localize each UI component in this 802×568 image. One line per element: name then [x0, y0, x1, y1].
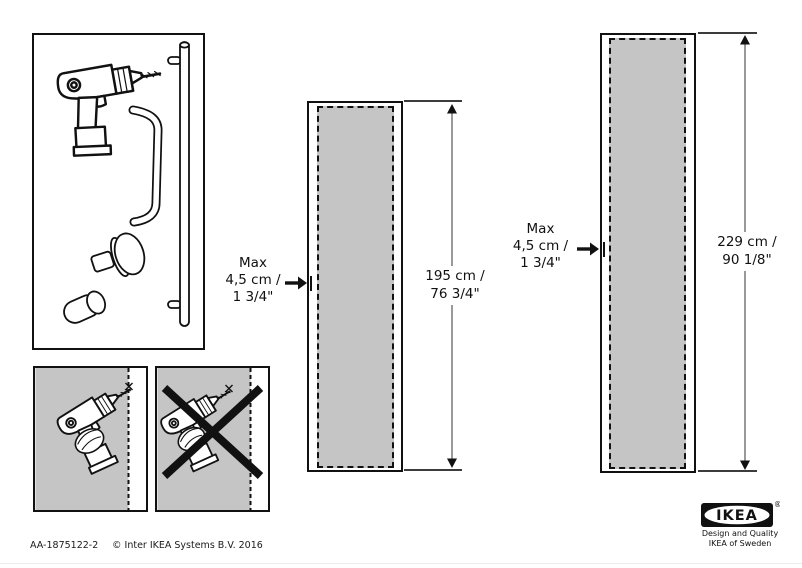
door-height-label-229: 229 cm / 90 1/8" [703, 232, 791, 271]
drill-limit-tick [310, 276, 312, 291]
max-distance-label-195: Max 4,5 cm / 1 3/4" [203, 255, 303, 306]
max-line: 1 3/4" [203, 289, 303, 306]
tagline-line: Design and Quality [694, 529, 786, 539]
max-line: 4,5 cm / [493, 238, 588, 255]
drilling-not-allowed-box [155, 366, 270, 512]
max-line: Max [203, 255, 303, 272]
door-panel-195 [307, 101, 403, 472]
ikea-logo: IKEA ® [700, 497, 780, 529]
parts-overview-box [32, 33, 205, 350]
size-line: 229 cm / [703, 234, 791, 252]
max-line: Max [493, 221, 588, 238]
article-number: AA-1875122-2 [30, 540, 98, 551]
door-panel-229 [600, 33, 696, 473]
size-line: 195 cm / [411, 268, 499, 286]
tagline-line: IKEA of Sweden [694, 539, 786, 549]
extension-line [404, 469, 462, 471]
size-line: 76 3/4" [411, 286, 499, 304]
logo-wordmark: IKEA [716, 508, 758, 524]
max-distance-label-229: Max 4,5 cm / 1 3/4" [493, 221, 588, 272]
max-line: 4,5 cm / [203, 272, 303, 289]
no-drill-zone [317, 106, 394, 468]
no-drill-zone [609, 38, 686, 469]
page-bottom-hairline [0, 563, 802, 564]
round-knob-icon [87, 230, 149, 286]
drilling-allowed-illustration [35, 368, 146, 510]
registered-mark: ® [774, 500, 780, 509]
bar-handle-icon [168, 42, 189, 326]
cylinder-knob-icon [60, 289, 108, 327]
drilling-not-allowed-illustration [157, 368, 268, 510]
drilling-allowed-box [33, 366, 148, 512]
bow-handle-icon [133, 110, 158, 222]
brand-tagline: Design and Quality IKEA of Sweden [694, 529, 786, 548]
copyright-notice: © Inter IKEA Systems B.V. 2016 [112, 540, 263, 551]
door-height-label-195: 195 cm / 76 3/4" [411, 266, 499, 305]
extension-line [404, 100, 462, 102]
parts-illustration [34, 35, 203, 348]
drill-limit-tick [603, 242, 605, 257]
size-line: 90 1/8" [703, 252, 791, 270]
max-line: 1 3/4" [493, 255, 588, 272]
